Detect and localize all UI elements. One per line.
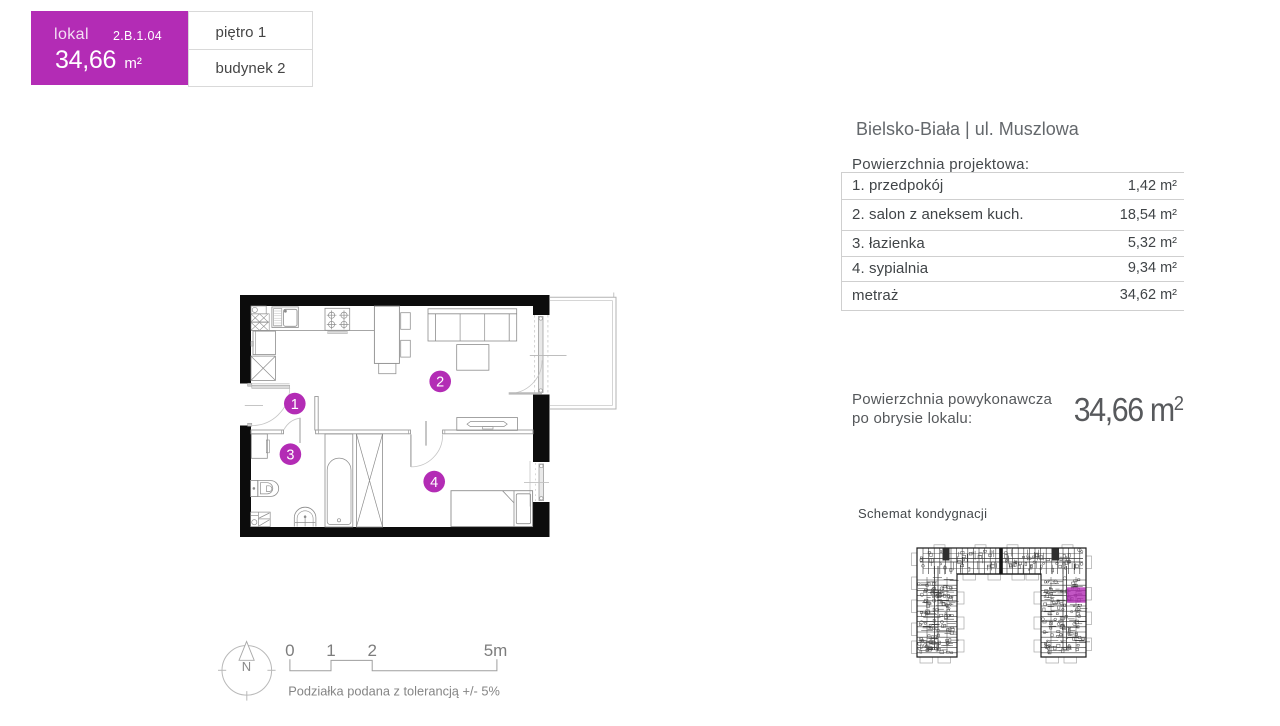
- svg-text:2: 2: [367, 641, 376, 660]
- svg-text:5m: 5m: [484, 641, 508, 660]
- svg-text:N: N: [242, 659, 251, 674]
- svg-text:0: 0: [285, 641, 294, 660]
- svg-text:3: 3: [286, 447, 294, 463]
- svg-text:1: 1: [326, 641, 335, 660]
- svg-text:2: 2: [436, 375, 444, 391]
- svg-text:Podziałka podana z tolerancją: Podziałka podana z tolerancją +/- 5%: [288, 684, 500, 699]
- svg-text:4: 4: [430, 475, 438, 491]
- svg-text:1: 1: [291, 397, 299, 413]
